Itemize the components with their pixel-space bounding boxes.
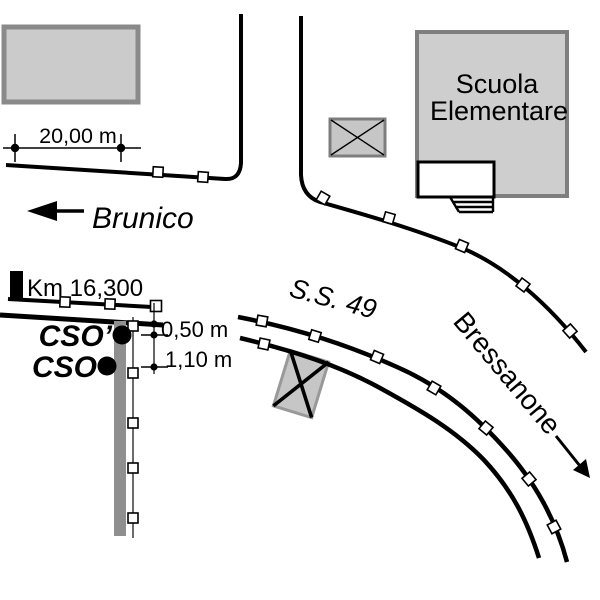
building-top-left	[4, 27, 138, 102]
sketch-canvas: Scuola Elementare	[0, 0, 600, 600]
dimension-20m: 20,00 m	[3, 124, 141, 162]
dimension-dot	[117, 144, 125, 152]
road-marker	[309, 330, 321, 342]
road-marker	[198, 172, 209, 183]
dimension-050-label: 0,50 m	[161, 317, 228, 342]
km-label: Km 16,300	[27, 275, 143, 302]
dimension-dot	[150, 363, 157, 370]
road-marker-terminal	[151, 301, 162, 312]
dimension-offsets: 0,50 m 1,10 m	[141, 303, 232, 374]
road-ss49-north-edge-east	[238, 317, 567, 562]
bressanone-label: Bressanone	[447, 306, 567, 440]
cso-point	[98, 357, 117, 376]
school-entrance	[418, 162, 494, 197]
fence-marker	[128, 463, 138, 473]
crossed-box-top	[330, 119, 385, 156]
school-label-line1: Scuola	[456, 69, 540, 99]
road-name-ss49: S.S. 49	[286, 273, 379, 325]
brunico-arrow-head-icon	[27, 201, 57, 221]
cso-prime-label: CSO’	[39, 320, 113, 353]
brunico-label: Brunico	[92, 202, 194, 235]
road-marker	[256, 315, 268, 327]
dimension-dot	[150, 320, 157, 327]
road-marker	[383, 212, 395, 224]
wall-bar	[114, 321, 126, 536]
school-stairs	[450, 197, 493, 212]
cso-prime-point	[113, 326, 132, 345]
fence-marker	[128, 418, 138, 428]
road-marker	[153, 167, 164, 178]
fence-marker	[128, 513, 138, 523]
cso-label: CSO	[32, 351, 97, 384]
dimension-110-label: 1,10 m	[165, 347, 232, 372]
ss49-label: S.S. 49	[286, 273, 379, 325]
site-sketch-map: Scuola Elementare	[0, 0, 600, 600]
road-marker	[258, 338, 270, 350]
bressanone-arrow-shaft	[556, 436, 580, 466]
dimension-20m-label: 20,00 m	[39, 124, 117, 148]
school-label-line2: Elementare	[430, 96, 568, 126]
direction-brunico: Brunico	[27, 201, 194, 235]
km-marker-icon	[10, 271, 23, 300]
dimension-dot	[150, 331, 157, 338]
dimension-dot	[11, 144, 19, 152]
km-marker: Km 16,300	[10, 271, 143, 302]
fence-marker	[128, 368, 138, 378]
